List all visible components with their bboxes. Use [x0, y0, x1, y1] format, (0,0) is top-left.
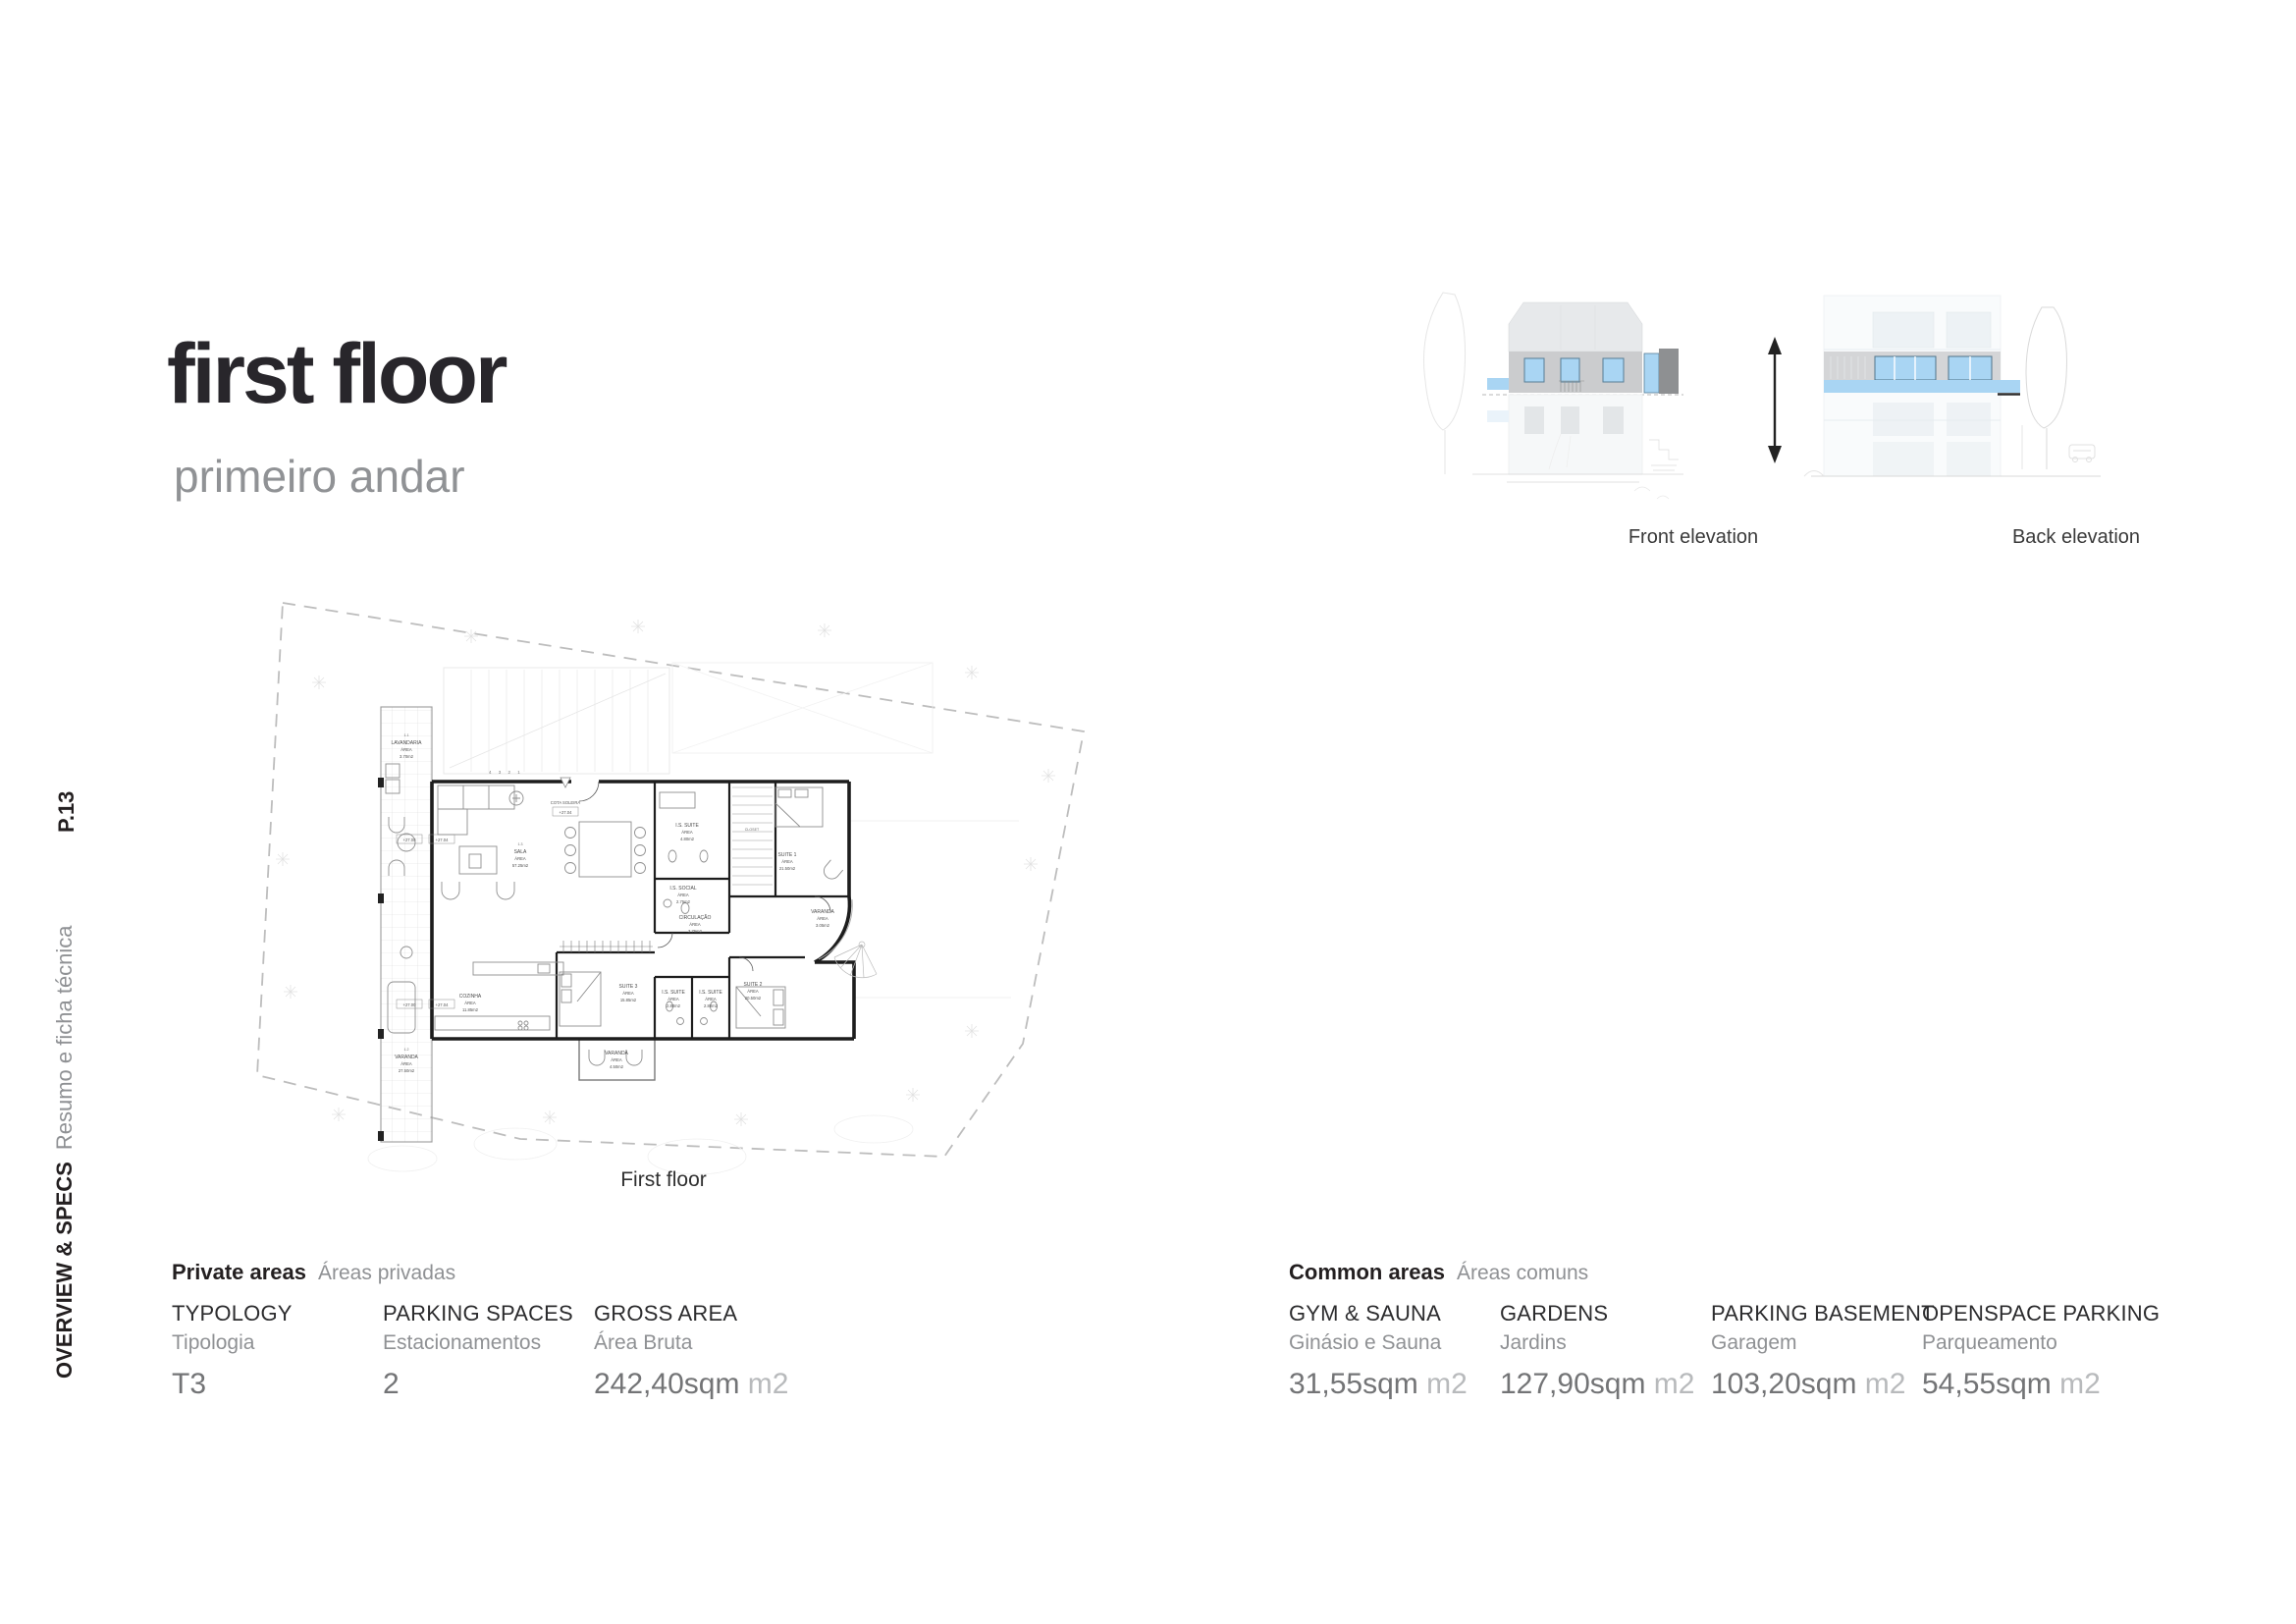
- svg-text:VARANDA: VARANDA: [811, 909, 834, 915]
- page-number: P.13: [54, 791, 80, 833]
- floor-plan-caption: First floor: [587, 1168, 740, 1192]
- svg-text:15.85m2: 15.85m2: [620, 998, 637, 1002]
- svg-text:2.80m2: 2.80m2: [667, 1003, 681, 1008]
- back-elevation-car: [2069, 445, 2095, 462]
- section-label-pt: Resumo e ficha técnica: [52, 925, 77, 1150]
- svg-text:ÁREA: ÁREA: [400, 747, 412, 752]
- svg-text:3.05m2: 3.05m2: [816, 923, 830, 928]
- front-elevation-caption: Front elevation: [1610, 526, 1777, 549]
- floor-plan-drawing: 4 3 2 1 +27.00 +27.04 +27.00 +27.04 COTA…: [226, 569, 1109, 1208]
- svg-text:CIRCULAÇÃO: CIRCULAÇÃO: [679, 914, 712, 921]
- common-areas-subtitle: Áreas comuns: [1457, 1262, 1588, 1284]
- svg-text:CLOSET: CLOSET: [745, 828, 760, 832]
- svg-text:2.75m2: 2.75m2: [676, 899, 691, 904]
- svg-text:4.50m2: 4.50m2: [610, 1064, 624, 1069]
- back-elevation-building: [1824, 296, 2020, 476]
- svg-text:SUITE 1: SUITE 1: [778, 852, 797, 858]
- svg-text:VARANDA: VARANDA: [395, 1055, 418, 1060]
- svg-text:COTA SOLEIRA: COTA SOLEIRA: [551, 800, 581, 805]
- svg-text:SALA: SALA: [514, 849, 527, 855]
- common-areas-title: Common areas: [1289, 1260, 1445, 1284]
- private-areas-header: Private areasÁreas privadas: [172, 1260, 805, 1285]
- svg-text:ÁREA: ÁREA: [464, 1001, 476, 1005]
- svg-text:ÁREA: ÁREA: [747, 989, 759, 994]
- svg-text:20.50m2: 20.50m2: [745, 996, 762, 1001]
- svg-text:I.S. SUITE: I.S. SUITE: [675, 823, 699, 829]
- svg-text:SUITE 3: SUITE 3: [619, 984, 638, 990]
- svg-text:21.50m2: 21.50m2: [779, 866, 796, 871]
- svg-text:3.75m2: 3.75m2: [688, 929, 703, 934]
- spec-gardens: GARDENS Jardins 127,90sqm m2: [1500, 1301, 1711, 1401]
- front-elevation-building: [1472, 302, 1683, 499]
- svg-text:ÁREA: ÁREA: [681, 830, 693, 835]
- room-label-closet: CLOSET: [745, 828, 760, 832]
- svg-text:LAVANDARIA: LAVANDARIA: [392, 740, 423, 746]
- elevation-link-arrow-icon: [1757, 334, 1792, 466]
- svg-text:2.80m2: 2.80m2: [704, 1003, 719, 1008]
- spec-gym-sauna: GYM & SAUNA Ginásio e Sauna 31,55sqm m2: [1289, 1301, 1500, 1401]
- svg-text:4.80m2: 4.80m2: [680, 837, 695, 841]
- spec-gross-area: GROSS AREA Área Bruta 242,40sqm m2: [594, 1301, 805, 1401]
- svg-text:1.3: 1.3: [518, 842, 523, 846]
- back-elevation-tree: [2022, 307, 2066, 469]
- svg-text:I.S. SUITE: I.S. SUITE: [699, 990, 722, 996]
- svg-text:VARANDA: VARANDA: [605, 1051, 628, 1056]
- private-areas-block: Private areasÁreas privadas TYPOLOGY Tip…: [172, 1260, 805, 1401]
- svg-text:I.S. SOCIAL: I.S. SOCIAL: [669, 886, 696, 892]
- svg-text:1.1: 1.1: [404, 733, 409, 737]
- front-elevation-drawing: [1414, 273, 1737, 518]
- svg-text:+27.04: +27.04: [436, 838, 450, 842]
- private-areas-title: Private areas: [172, 1260, 306, 1284]
- svg-text:27.50m2: 27.50m2: [399, 1068, 415, 1073]
- spec-openspace-parking: OPENSPACE PARKING Parqueamento 54,55sqm …: [1922, 1301, 2133, 1401]
- svg-text:ÁREA: ÁREA: [400, 1061, 412, 1066]
- svg-text:ÁREA: ÁREA: [667, 997, 679, 1001]
- spec-parking-spaces: PARKING SPACES Estacionamentos 2: [383, 1301, 594, 1401]
- svg-text:+27.04: +27.04: [436, 1002, 450, 1007]
- svg-text:+27.00: +27.00: [403, 1002, 417, 1007]
- private-areas-subtitle: Áreas privadas: [318, 1262, 455, 1284]
- section-label: OVERVIEW & SPECSResumo e ficha técnica: [52, 925, 78, 1379]
- svg-text:57.25m2: 57.25m2: [512, 863, 529, 868]
- svg-text:ÁREA: ÁREA: [514, 856, 526, 861]
- page-subtitle: primeiro andar: [174, 454, 465, 499]
- back-elevation-caption: Back elevation: [1993, 526, 2160, 549]
- svg-text:1.2: 1.2: [404, 1048, 409, 1052]
- spec-typology: TYPOLOGY Tipologia T3: [172, 1301, 383, 1401]
- svg-text:ÁREA: ÁREA: [622, 991, 634, 996]
- spec-parking-basement: PARKING BASEMENT Garagem 103,20sqm m2: [1711, 1301, 1922, 1401]
- svg-text:11.85m2: 11.85m2: [462, 1007, 479, 1012]
- svg-text:3.70m2: 3.70m2: [400, 754, 414, 759]
- exterior-stair-sketch: [444, 663, 933, 774]
- front-elevation-tree: [1423, 293, 1465, 474]
- svg-text:ÁREA: ÁREA: [689, 922, 701, 927]
- brochure-page: first floor primeiro andar P.13 OVERVIEW…: [0, 0, 2296, 1624]
- building-footprint: [381, 707, 854, 1142]
- svg-text:ÁREA: ÁREA: [611, 1057, 622, 1062]
- svg-text:+27.04: +27.04: [560, 810, 573, 815]
- svg-text:ÁREA: ÁREA: [817, 916, 828, 921]
- svg-text:COZINHA: COZINHA: [459, 994, 482, 1000]
- svg-text:SUITE 2: SUITE 2: [744, 982, 763, 988]
- svg-text:ÁREA: ÁREA: [677, 893, 689, 897]
- svg-text:ÁREA: ÁREA: [781, 859, 793, 864]
- page-title: first floor: [167, 332, 505, 416]
- common-areas-block: Common areasÁreas comuns GYM & SAUNA Gin…: [1289, 1260, 2133, 1401]
- svg-text:+27.00: +27.00: [403, 838, 417, 842]
- svg-text:ÁREA: ÁREA: [705, 997, 717, 1001]
- entry-steps-label: 4 3 2 1: [489, 770, 523, 775]
- section-label-en: OVERVIEW & SPECS: [52, 1162, 77, 1379]
- back-elevation-drawing: [1796, 273, 2120, 518]
- common-areas-header: Common areasÁreas comuns: [1289, 1260, 2133, 1285]
- svg-text:I.S. SUITE: I.S. SUITE: [662, 990, 685, 996]
